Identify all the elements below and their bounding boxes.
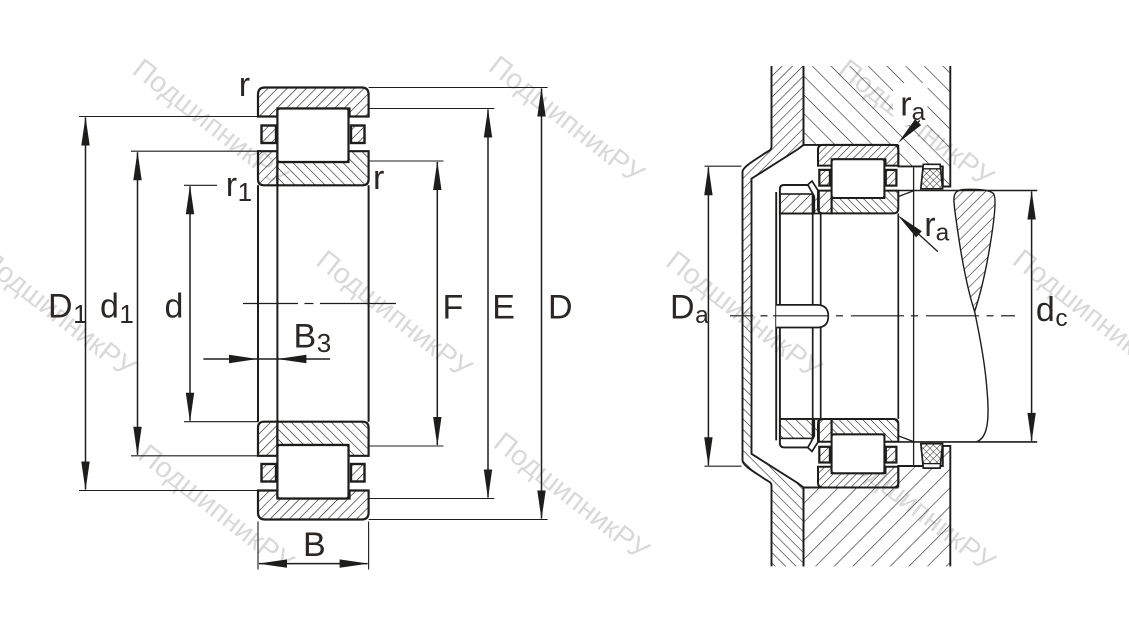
svg-text:r: r	[373, 159, 384, 197]
svg-text:d: d	[165, 288, 184, 326]
svg-text:E: E	[492, 289, 515, 327]
svg-text:ra: ra	[924, 206, 949, 247]
svg-text:B3: B3	[294, 318, 332, 359]
svg-text:ПодшипникРУ: ПодшипникРУ	[488, 426, 656, 567]
svg-text:d1: d1	[100, 288, 134, 330]
svg-text:ПодшипникРУ: ПодшипникРУ	[483, 50, 651, 191]
svg-text:ПодшипникРУ: ПодшипникРУ	[1007, 243, 1129, 384]
svg-text:D1: D1	[48, 288, 88, 330]
svg-text:D: D	[548, 289, 573, 327]
svg-text:B: B	[303, 526, 326, 564]
svg-text:r: r	[239, 66, 250, 104]
svg-text:F: F	[443, 289, 464, 327]
